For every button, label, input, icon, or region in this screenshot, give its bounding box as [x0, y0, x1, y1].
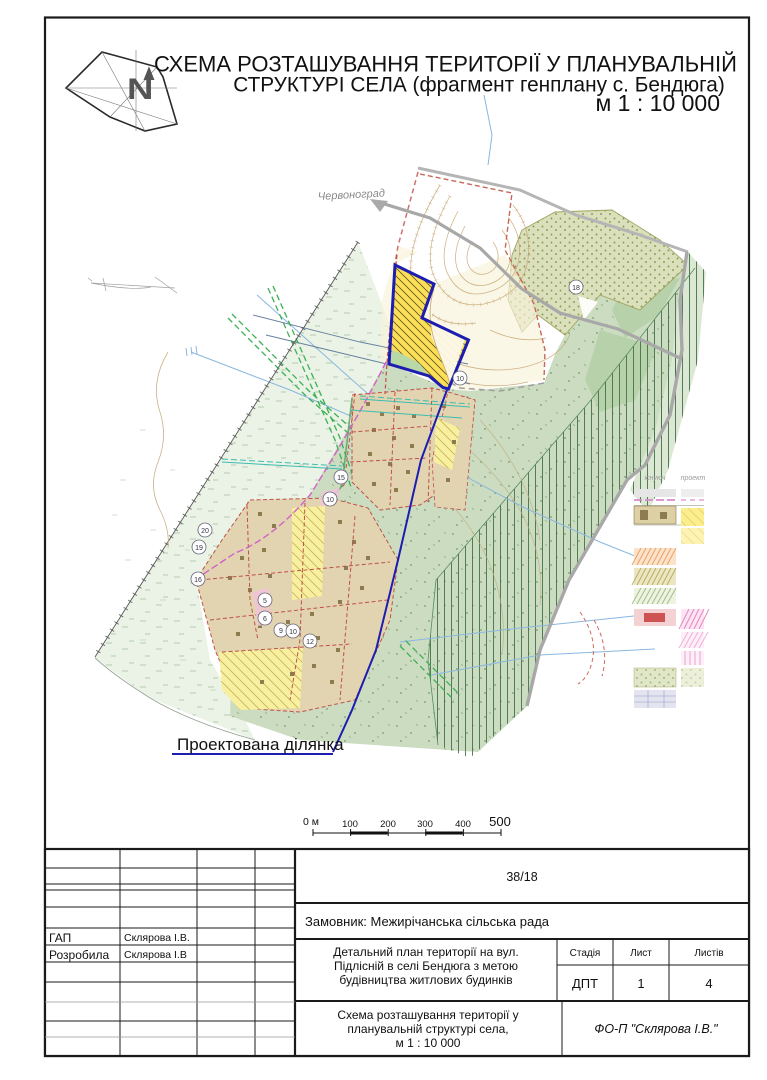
- svg-text:м 1 : 10 000: м 1 : 10 000: [595, 90, 720, 116]
- svg-text:Детальний план території на ву: Детальний план території на вул.: [333, 945, 518, 959]
- svg-text:18: 18: [572, 285, 580, 292]
- svg-text:будівництва житлових будинків: будівництва житлових будинків: [339, 973, 512, 987]
- svg-text:ДПТ: ДПТ: [572, 976, 598, 991]
- svg-text:4: 4: [705, 976, 712, 991]
- svg-text:Розробила: Розробила: [49, 948, 109, 962]
- svg-text:100: 100: [342, 819, 358, 830]
- svg-text:Склярова І.В: Склярова І.В: [124, 949, 187, 961]
- svg-text:19: 19: [195, 545, 203, 552]
- svg-text:6: 6: [263, 616, 267, 623]
- svg-text:1: 1: [637, 976, 644, 991]
- svg-text:Підлісній в селі Бендюга з мет: Підлісній в селі Бендюга з метою: [334, 959, 518, 973]
- svg-text:20: 20: [201, 528, 209, 535]
- svg-text:Стадія: Стадія: [570, 948, 601, 959]
- svg-text:планувальній структурі села,: планувальній структурі села,: [347, 1022, 508, 1036]
- svg-text:300: 300: [417, 819, 433, 830]
- svg-text:16: 16: [194, 577, 202, 584]
- svg-text:існуюч: існуюч: [645, 474, 666, 482]
- svg-text:0 м: 0 м: [303, 816, 319, 828]
- svg-text:12: 12: [306, 639, 314, 646]
- svg-text:Проектована ділянка: Проектована ділянка: [177, 735, 344, 754]
- svg-text:10: 10: [456, 376, 464, 383]
- svg-text:500: 500: [489, 814, 511, 829]
- svg-text:проект: проект: [681, 475, 706, 482]
- svg-text:Листів: Листів: [694, 948, 723, 959]
- svg-text:Лист: Лист: [630, 948, 652, 959]
- svg-text:Склярова І.В.: Склярова І.В.: [124, 932, 190, 944]
- svg-text:м 1 : 10 000: м 1 : 10 000: [396, 1036, 461, 1050]
- svg-text:ФО-П "Склярова І.В.": ФО-П "Склярова І.В.": [594, 1022, 718, 1036]
- svg-text:5: 5: [263, 598, 267, 605]
- svg-text:15: 15: [337, 475, 345, 482]
- svg-text:Замовник: Межирічанська сільсь: Замовник: Межирічанська сільська рада: [305, 914, 550, 929]
- svg-text:10: 10: [289, 629, 297, 636]
- svg-text:200: 200: [380, 819, 396, 830]
- svg-text:38/18: 38/18: [506, 870, 537, 884]
- svg-text:9: 9: [279, 628, 283, 635]
- svg-text:Схема розташування території у: Схема розташування території у: [337, 1008, 518, 1022]
- svg-text:400: 400: [455, 819, 471, 830]
- svg-text:ГАП: ГАП: [49, 931, 71, 945]
- svg-text:10: 10: [326, 497, 334, 504]
